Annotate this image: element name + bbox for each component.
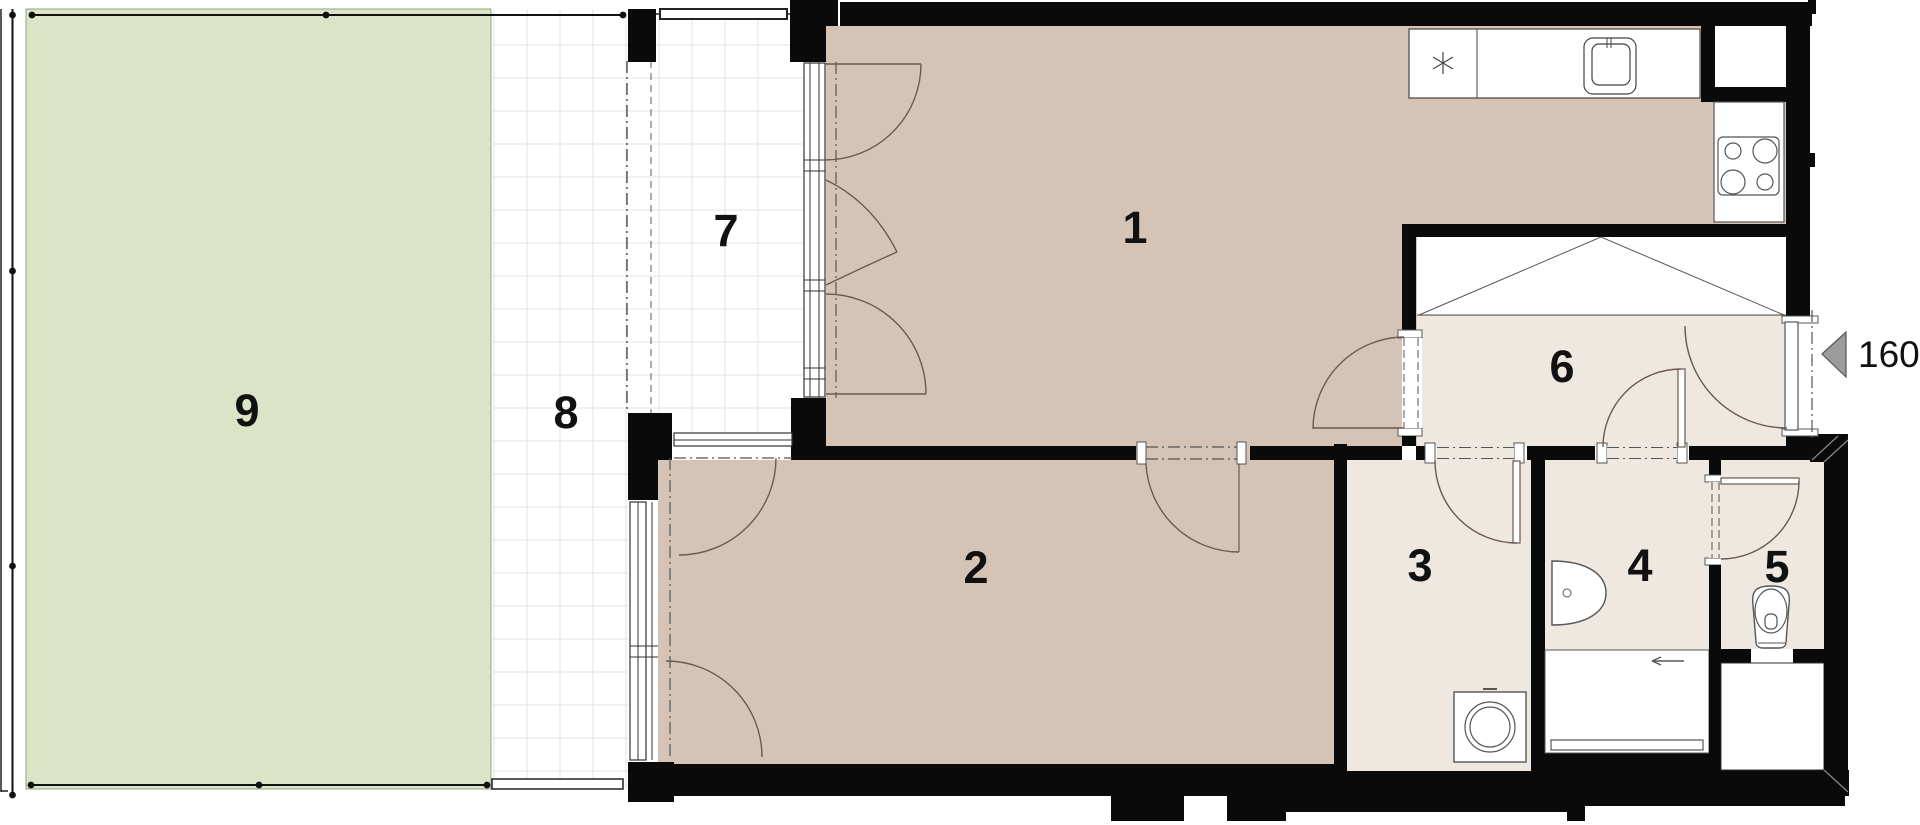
svg-text:8: 8 xyxy=(553,387,578,438)
svg-text:9: 9 xyxy=(234,385,259,436)
svg-text:2: 2 xyxy=(963,542,988,593)
svg-text:7: 7 xyxy=(713,205,738,256)
svg-text:5: 5 xyxy=(1764,541,1789,592)
svg-text:6: 6 xyxy=(1549,341,1574,392)
svg-text:3: 3 xyxy=(1407,540,1432,591)
svg-text:4: 4 xyxy=(1627,540,1652,591)
svg-text:1: 1 xyxy=(1122,202,1147,253)
svg-text:160: 160 xyxy=(1858,334,1920,375)
